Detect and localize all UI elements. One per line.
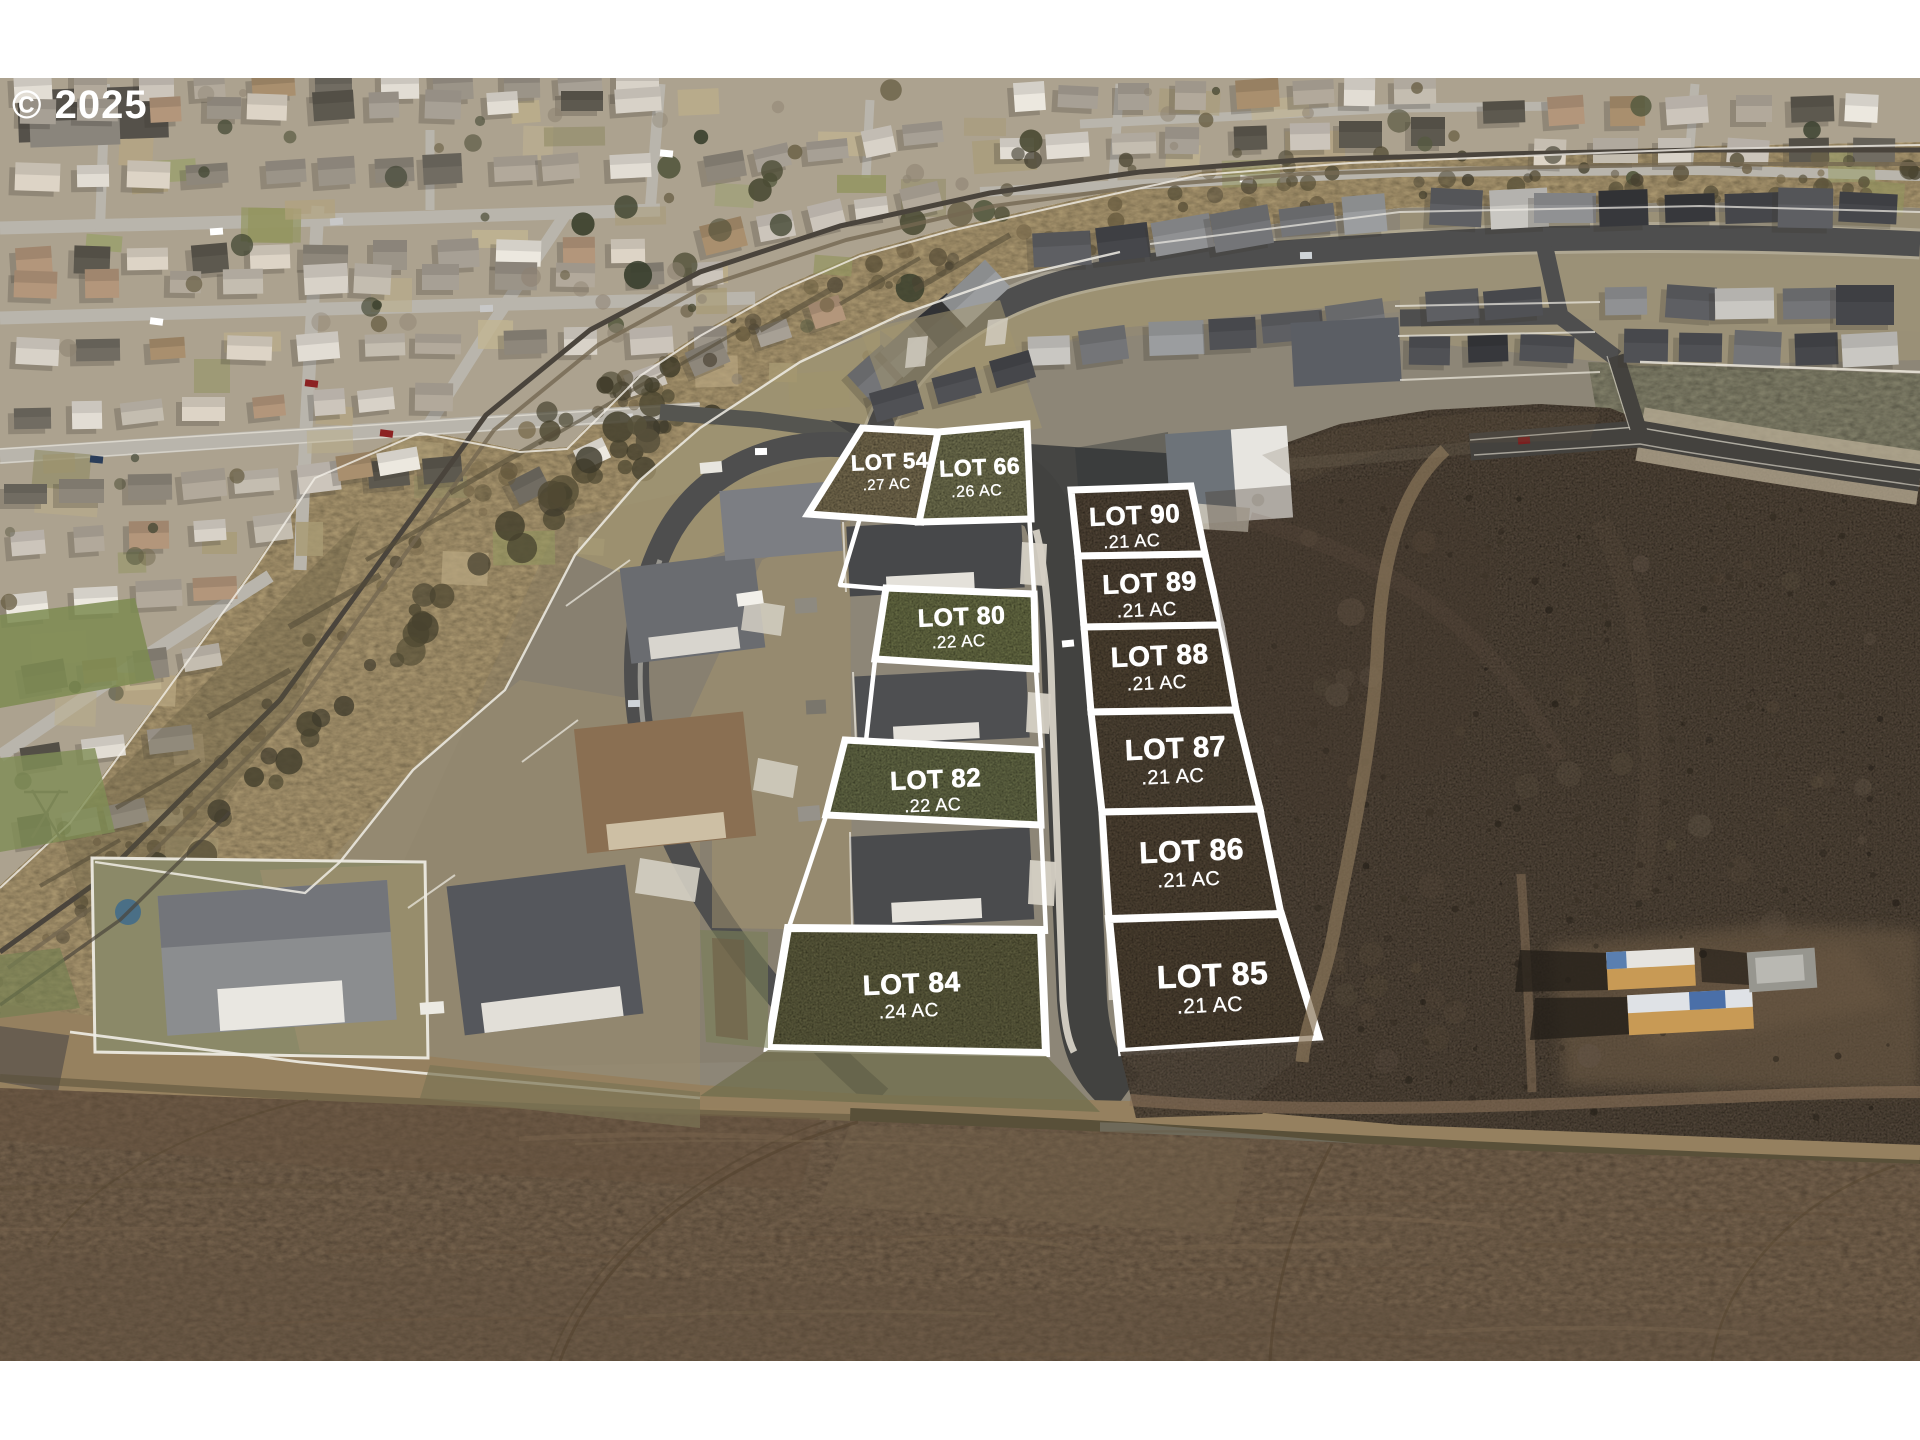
svg-text:.21 AC: .21 AC	[1116, 599, 1177, 623]
svg-text:© 2025: © 2025	[12, 83, 148, 127]
svg-text:LOT 90: LOT 90	[1088, 498, 1180, 532]
svg-text:.21 AC: .21 AC	[1126, 672, 1187, 696]
svg-text:.22 AC: .22 AC	[904, 794, 962, 816]
svg-text:.27 AC: .27 AC	[862, 475, 911, 494]
svg-text:LOT 82: LOT 82	[889, 762, 981, 796]
svg-text:.21 AC: .21 AC	[1103, 530, 1161, 552]
svg-text:LOT 85: LOT 85	[1156, 955, 1269, 996]
svg-text:.26 AC: .26 AC	[951, 482, 1003, 501]
svg-text:.21 AC: .21 AC	[1141, 765, 1205, 790]
svg-text:.21 AC: .21 AC	[1157, 868, 1221, 893]
svg-text:LOT 80: LOT 80	[917, 601, 1006, 633]
svg-text:.21 AC: .21 AC	[1176, 993, 1243, 1019]
svg-text:LOT 87: LOT 87	[1124, 731, 1227, 767]
svg-text:LOT 54: LOT 54	[850, 447, 929, 475]
svg-text:LOT 66: LOT 66	[939, 452, 1021, 482]
svg-text:.24 AC: .24 AC	[878, 1000, 939, 1024]
svg-text:LOT 88: LOT 88	[1110, 638, 1209, 673]
svg-text:LOT 86: LOT 86	[1139, 833, 1245, 871]
svg-text:LOT 89: LOT 89	[1102, 566, 1198, 600]
svg-text:LOT 84: LOT 84	[862, 966, 961, 1001]
svg-text:.22 AC: .22 AC	[931, 631, 986, 652]
